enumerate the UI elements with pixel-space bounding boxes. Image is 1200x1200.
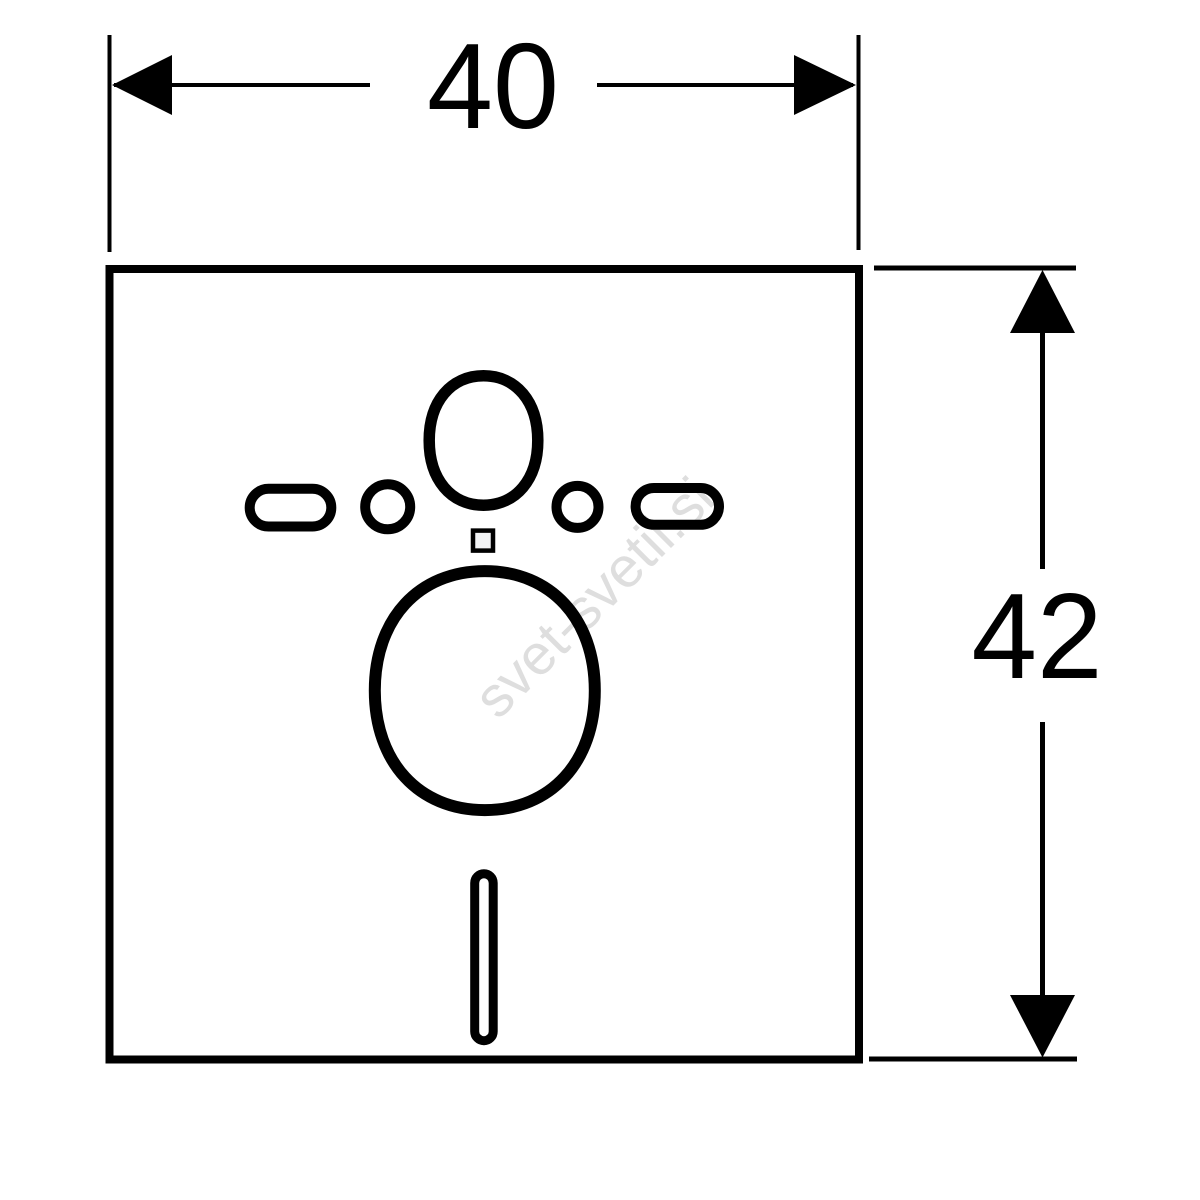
svg-text:40: 40 [427, 18, 559, 154]
svg-text:42: 42 [972, 568, 1103, 704]
